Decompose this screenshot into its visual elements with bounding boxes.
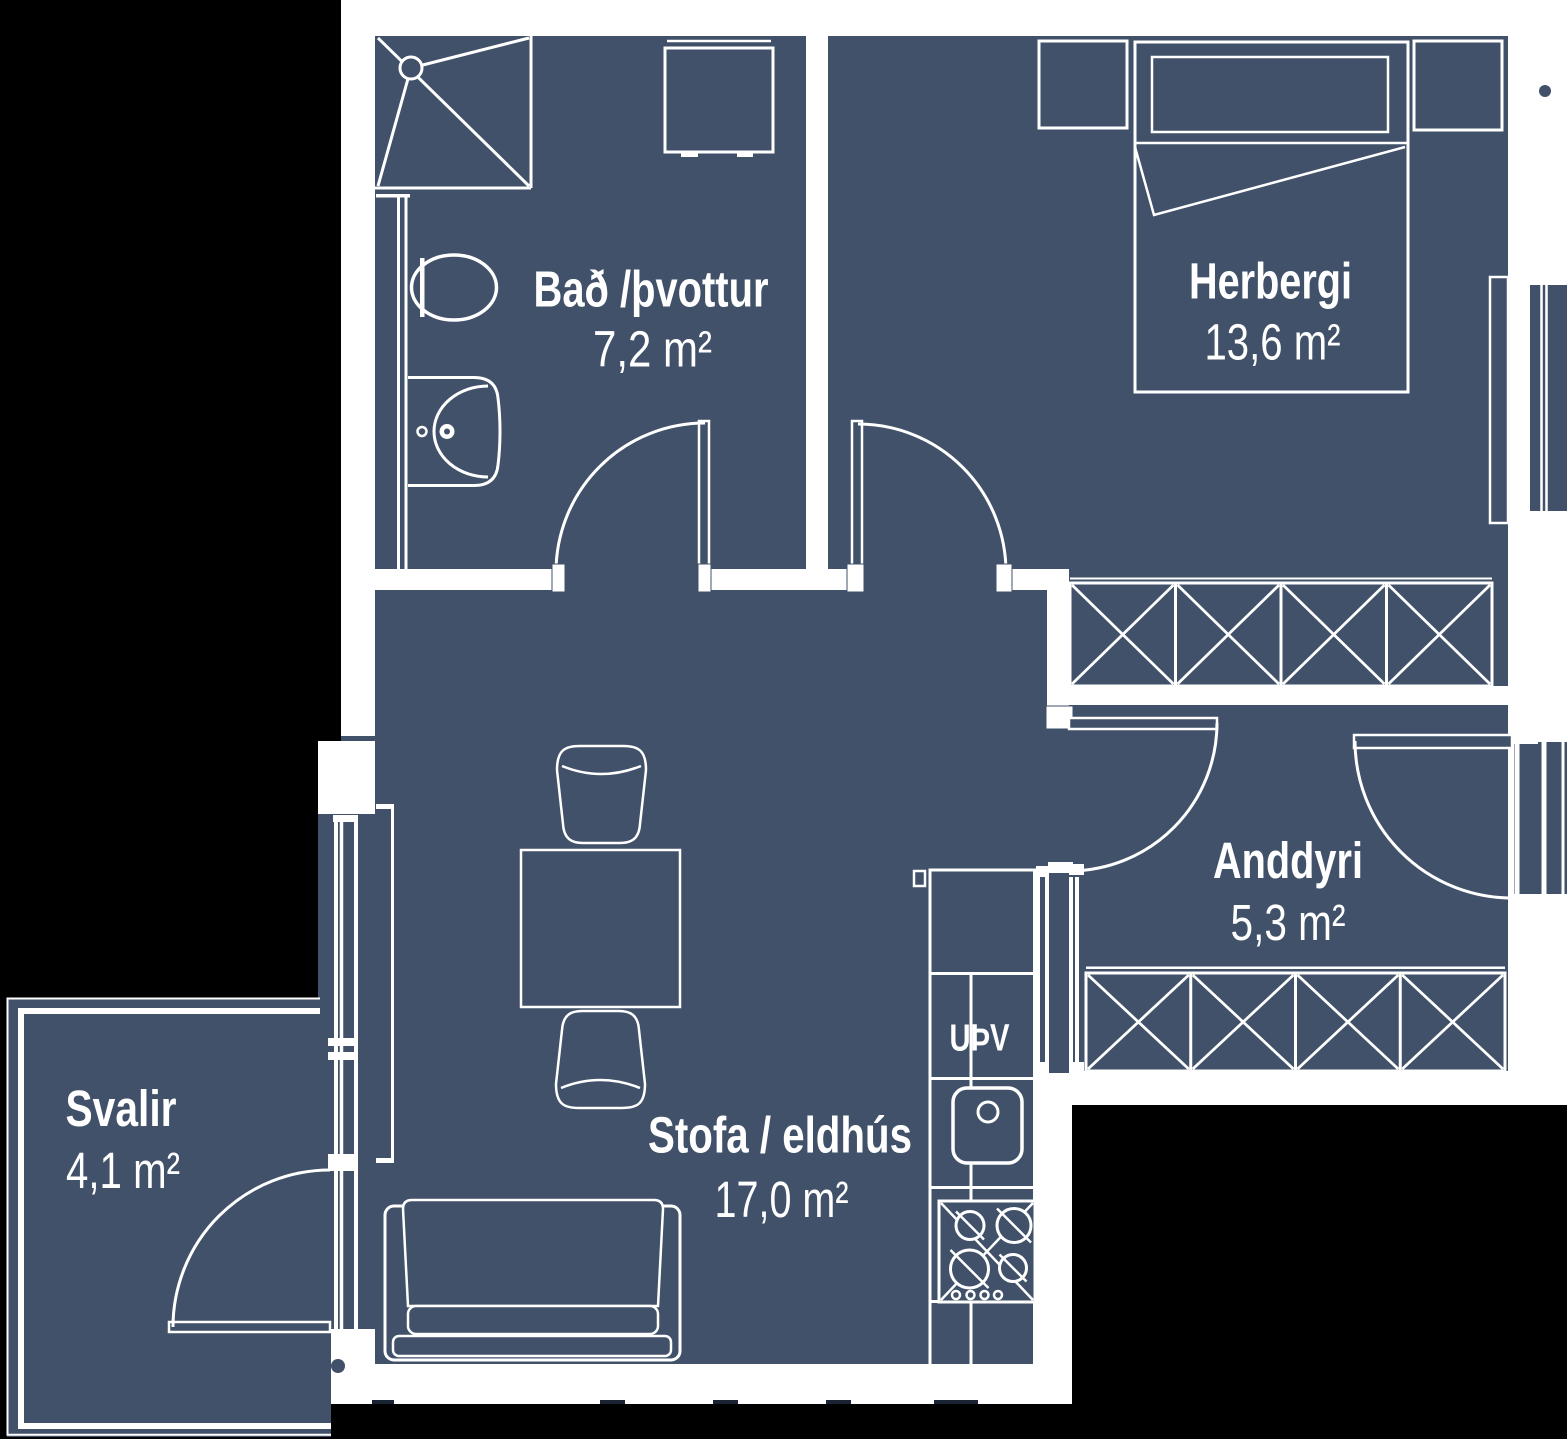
svg-text:Herbergi: Herbergi <box>1189 253 1352 310</box>
svg-text:5,3 m²: 5,3 m² <box>1231 894 1346 951</box>
svg-text:7,2 m²: 7,2 m² <box>593 321 712 378</box>
svg-text:Bað /þvottur: Bað /þvottur <box>534 261 769 318</box>
svg-text:17,0 m²: 17,0 m² <box>715 1171 849 1228</box>
svg-text:Svalir: Svalir <box>66 1080 177 1137</box>
svg-text:4,1 m²: 4,1 m² <box>66 1142 180 1199</box>
svg-text:UÞV: UÞV <box>950 1018 1010 1060</box>
svg-text:13,6 m²: 13,6 m² <box>1205 314 1341 371</box>
svg-text:Stofa / eldhús: Stofa / eldhús <box>648 1107 912 1164</box>
svg-text:Anddyri: Anddyri <box>1213 832 1363 889</box>
